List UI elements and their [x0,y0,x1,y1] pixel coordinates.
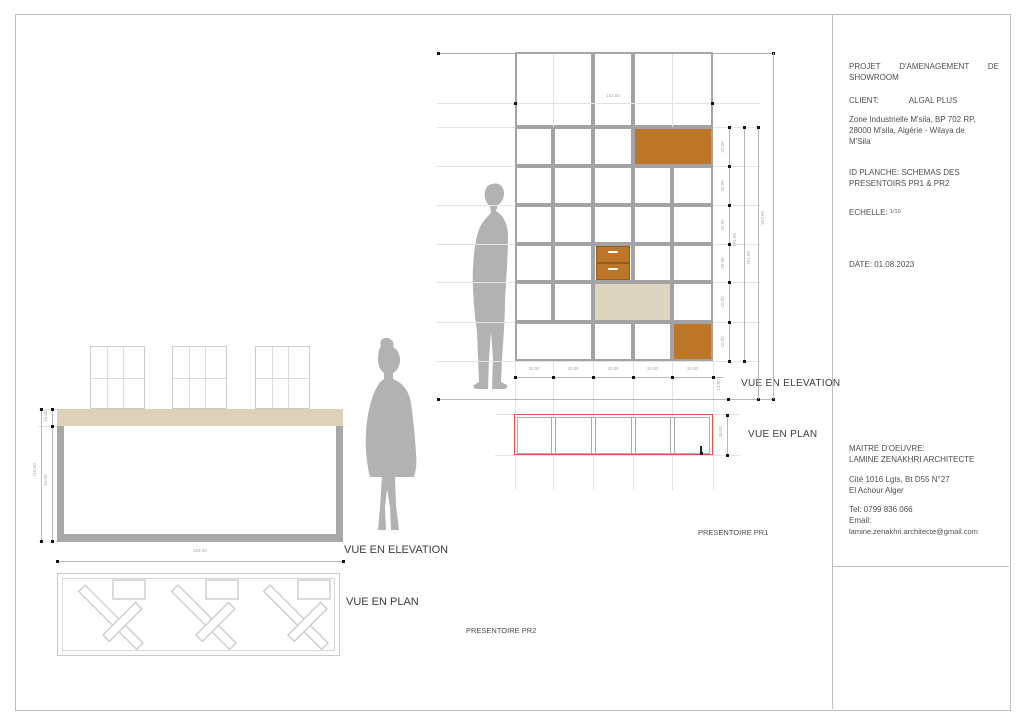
dim-dot [743,126,746,129]
human-silhouette-male [461,182,513,394]
shelf-drawer [596,263,630,280]
shelf-cell [593,166,633,205]
date: DATE: 01.08.2023 [849,259,1001,270]
dim-dot [743,360,746,363]
pr2-elevation-label: VUE EN ELEVATION [344,544,448,556]
dim-line [438,399,773,400]
dim-dot [514,102,517,105]
drawing-sheet: PROJET D'AMENAGEMENT DE SHOWROOM CLIENT:… [0,0,1024,724]
sheet-id-line1: ID PLANCHE: SCHEMAS DES [849,167,1001,178]
dim-line [727,415,728,456]
pr2-tabletop [57,409,343,426]
dim-text: 194.00 [732,225,738,255]
shelf-brown-panel [633,127,713,166]
title-block-hdivider [832,566,1009,567]
dim-line [515,377,723,378]
email-label: Email: [849,515,1001,526]
dim-text: 234.00 [185,548,215,554]
dim-text: 32.00 [720,210,726,240]
client-row: CLIENT: ALGAL PLUS [849,95,1001,106]
dim-dot [727,398,730,401]
display-box-divider [256,378,309,379]
shelf-cell [633,244,672,282]
human-silhouette-female [350,337,422,535]
client-label: CLIENT: [849,95,907,106]
shelf-cell [515,282,553,322]
dim-text: 32.00 [519,366,549,372]
moe-label: MAITRE D'OEUVRE: [849,443,1001,454]
title-block-divider [832,14,833,709]
dim-text: 253.00 [760,203,766,233]
dim-text: 94.00 [43,465,49,495]
shelf-cell [515,127,553,166]
dim-text: 32.00 [720,327,726,357]
shelf-cell [593,52,633,127]
dim-dot [757,126,760,129]
dim-dot [437,398,440,401]
shelf-cell [515,52,593,127]
moe-address-line1: Cité 1016 Lgts, Bt D55 N°27 [849,474,1001,485]
shelf-cell [593,322,633,361]
dim-text: 110.00 [32,455,38,485]
dim-dot [40,540,43,543]
construction-line [713,361,714,490]
client-name: ALGAL PLUS [909,96,958,105]
dim-text: 32.00 [638,366,668,372]
dim-dot [728,281,731,284]
phone: Tel: 0799 836 066 [849,504,1001,515]
dim-dot [728,243,731,246]
dim-line [57,561,343,562]
shelf-cell [515,244,553,282]
dim-line [52,409,53,541]
pr2-name-label: PRESENTOIRE PR2 [466,626,536,635]
display-box-divider [173,378,226,379]
project-title-line1: PROJET D'AMENAGEMENT DE [849,61,999,72]
shelf-cell [553,244,593,282]
dim-text: 32.00 [720,287,726,317]
shelf-cell [593,205,633,244]
shelf-cell [515,166,553,205]
pr2-plan-inner [62,578,335,651]
scale-label: ECHELLE: [849,208,888,217]
shelf-cell [553,166,593,205]
dim-dot [342,560,345,563]
dim-dot [728,165,731,168]
dim-dot [56,560,59,563]
display-box-divider [91,378,144,379]
shelf-cell [515,322,593,361]
dim-text: 32.00 [720,171,726,201]
dim-line [758,127,759,399]
dim-text: 32.00 [598,366,628,372]
dim-dot [51,408,54,411]
drawer-handle [608,268,618,270]
shelf-cell [672,244,713,282]
shelf-cell [633,166,672,205]
dim-text: 162.00 [598,93,628,99]
pr1-plan-label: VUE EN PLAN [748,429,817,440]
client-address-line3: M'Sila [849,136,1001,147]
shelf-cell [672,282,713,322]
moe-address-line2: El Achour Alger [849,485,1001,496]
shelf-cell [633,205,672,244]
dim-dot [700,452,703,455]
scale-row: ECHELLE: 1/10 [849,207,1001,218]
shelf-cell [553,282,593,322]
construction-line [495,455,740,456]
pr1-elevation-label: VUE EN ELEVATION [741,378,840,389]
dim-dot [728,126,731,129]
dim-line [773,53,774,399]
dim-line [41,409,42,541]
pr1-plan-outline-red [514,414,713,455]
dim-text: 12.00 [716,370,722,400]
dim-text: 16.00 [43,401,49,431]
email: lamine.zenakhri.architecte@gmail.com [849,526,1001,537]
dim-dot [726,414,729,417]
dim-dot [51,540,54,543]
dim-dot [726,454,729,457]
dim-dot [728,360,731,363]
dim-dot [671,376,674,379]
client-address-line1: Zone Industrielle M'sila, BP 702 RP, [849,114,1001,125]
shelf-cell [553,127,593,166]
pr1-name-label: PRESENTOIRE PR1 [698,528,768,537]
dim-text: 32.00 [558,366,588,372]
dim-dot [514,376,517,379]
shelf-cell [515,205,553,244]
dim-dot [632,376,635,379]
shelf-beige-panel [593,282,672,322]
dim-dot [51,425,54,428]
project-title-line2: SHOWROOM [849,72,1001,83]
dim-dot [592,376,595,379]
dim-text: 32.00 [720,132,726,162]
shelf-cell [672,205,713,244]
shelf-cell [553,205,593,244]
dim-dot [712,376,715,379]
construction-line [672,54,673,127]
shelf-cell [633,52,713,127]
client-address-line2: 28000 M'sila, Algérie - Wilaya de [849,125,1001,136]
dim-dot [728,204,731,207]
dim-dot [711,102,714,105]
dim-dot [552,376,555,379]
shelf-cell [593,127,633,166]
shelf-brown-panel [672,322,713,361]
dim-text: 30.00 [718,417,724,447]
moe-name: LAMINE ZENAKHRI ARCHITECTE [849,454,1001,465]
dim-text: 32.00 [678,366,708,372]
drawer-handle [608,251,618,253]
dim-dot [728,321,731,324]
dim-text: 32.00 [720,248,726,278]
dim-line [744,127,745,361]
pr2-table-frame [57,426,343,542]
pr2-plan-label: VUE EN PLAN [346,596,419,608]
dim-dot [437,52,440,55]
dim-line [438,53,773,54]
dim-text: 191.00 [746,243,752,273]
sheet-id-line2: PRESENTOIRS PR1 & PR2 [849,178,1001,189]
construction-line [553,54,554,127]
project-title: PROJET D'AMENAGEMENT DE SHOWROOM [849,61,1001,83]
construction-line [437,361,760,362]
shelf-cell [633,322,672,361]
scale-value: 1/10 [890,209,901,215]
shelf-drawer [596,246,630,263]
shelf-cell [672,166,713,205]
